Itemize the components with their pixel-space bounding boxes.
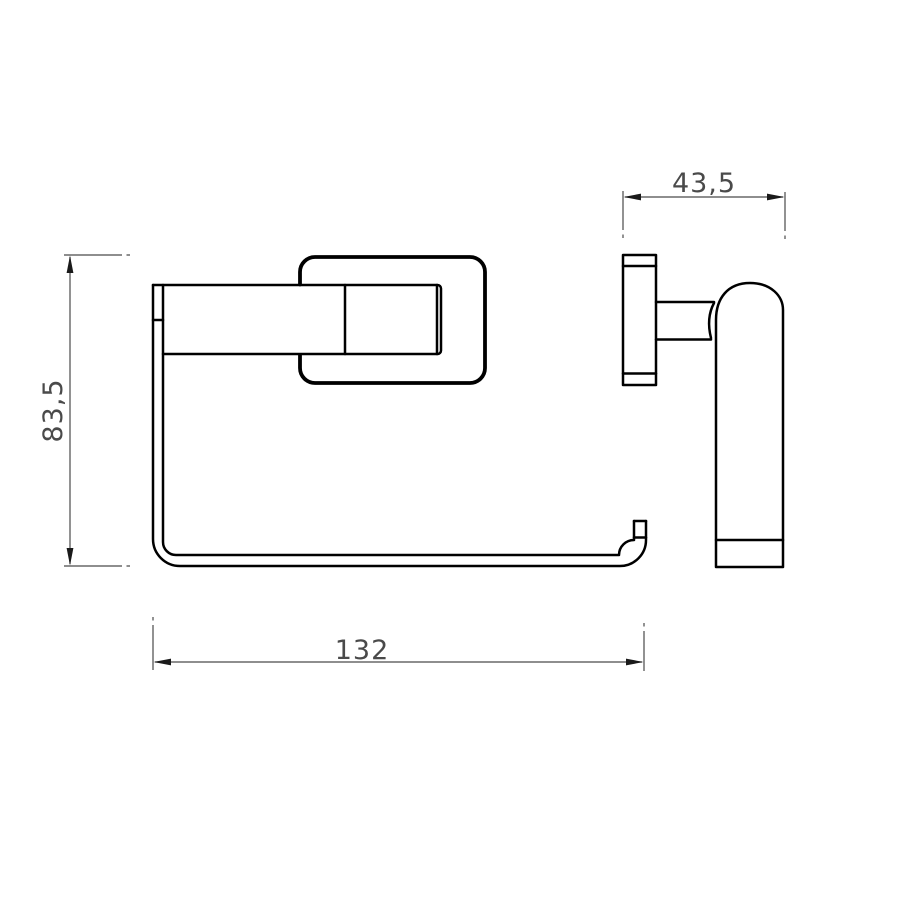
dimension-depth: 43,5 [623,168,785,239]
technical-drawing-page: 83,5 43,5 132 [0,0,900,900]
width-dimension-label: 132 [335,635,390,666]
front-view [153,257,646,566]
drawing-canvas: 83,5 43,5 132 [0,0,900,900]
front-rail-outer [153,285,646,566]
width-arrow-right-icon [626,659,644,666]
front-arm-outline [153,285,441,354]
side-view [623,255,783,567]
dimension-height: 83,5 [38,255,130,566]
front-wall-plate [300,257,485,383]
height-dimension-label: 83,5 [38,378,69,442]
depth-dimension-label: 43,5 [672,168,736,199]
side-wall-plate [623,255,656,385]
width-arrow-left-icon [154,659,172,666]
height-arrow-down-icon [67,548,74,566]
depth-arrow-left-icon [624,194,642,201]
depth-arrow-right-icon [767,194,785,201]
height-arrow-up-icon [67,256,74,274]
front-rail-inner [163,285,634,555]
dimension-width: 132 [153,617,644,671]
side-arm-fillet [709,303,714,338]
side-bar-outline [716,283,783,567]
